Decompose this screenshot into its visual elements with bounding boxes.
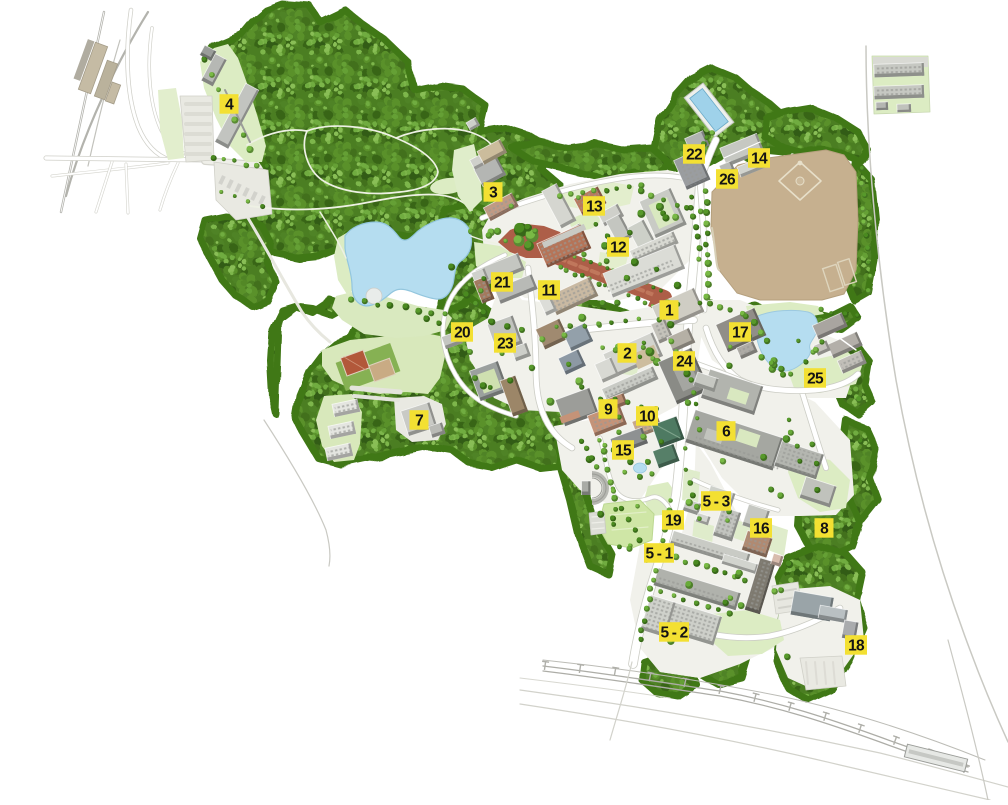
svg-text:26: 26 [719,172,736,189]
svg-text:2: 2 [623,346,631,363]
svg-text:18: 18 [848,638,865,655]
svg-text:9: 9 [604,402,613,419]
svg-text:13: 13 [586,199,603,216]
svg-text:10: 10 [639,409,655,426]
svg-text:19: 19 [665,513,682,530]
svg-text:25: 25 [807,371,824,388]
svg-text:14: 14 [751,151,768,168]
svg-text:3: 3 [489,185,498,202]
svg-text:15: 15 [615,443,632,460]
svg-text:17: 17 [732,325,748,342]
svg-text:11: 11 [542,283,558,300]
svg-text:7: 7 [415,413,423,430]
svg-text:4: 4 [225,97,234,114]
svg-text:24: 24 [676,354,693,371]
svg-text:5 - 2: 5 - 2 [660,625,687,642]
svg-text:23: 23 [497,336,514,353]
svg-text:16: 16 [753,521,770,538]
svg-text:5 - 1: 5 - 1 [645,546,673,563]
svg-text:5 - 3: 5 - 3 [702,494,730,511]
svg-text:21: 21 [494,275,511,292]
svg-text:22: 22 [686,147,702,164]
svg-text:20: 20 [454,325,470,342]
svg-text:1: 1 [665,303,674,320]
svg-text:8: 8 [820,521,829,538]
svg-text:12: 12 [610,240,626,257]
svg-text:6: 6 [722,424,731,441]
